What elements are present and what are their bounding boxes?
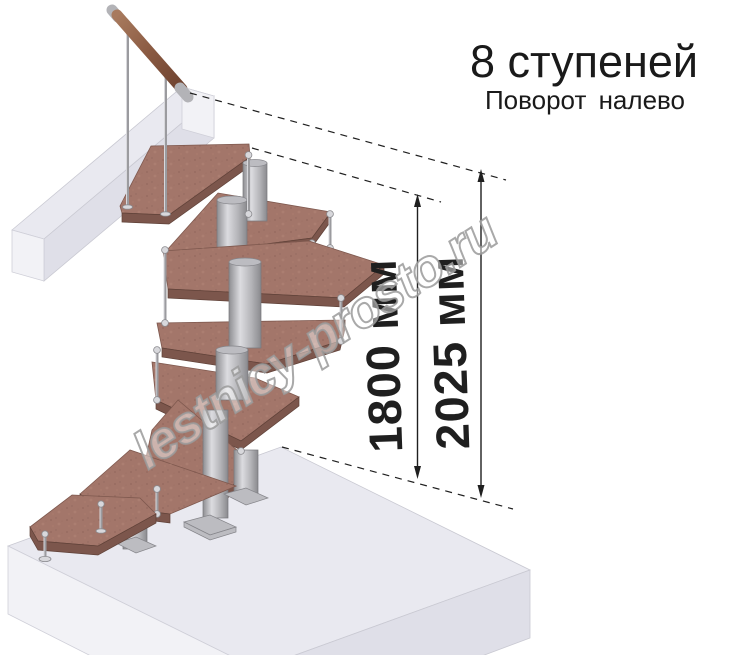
beam-left-end-face (12, 230, 44, 281)
staircase-illustration: 1800 мм 2025 мм 8 ступеней Поворот налев… (0, 0, 744, 655)
handrail-bottom-cap (180, 88, 188, 97)
staircase-diagram-page: 1800 мм 2025 мм 8 ступеней Поворот налев… (0, 0, 744, 655)
page-title: 8 ступеней (470, 36, 698, 87)
page-subtitle: Поворот налево (485, 85, 685, 115)
center-column-module-3 (229, 258, 261, 348)
projection-line-top-inner (252, 148, 441, 202)
